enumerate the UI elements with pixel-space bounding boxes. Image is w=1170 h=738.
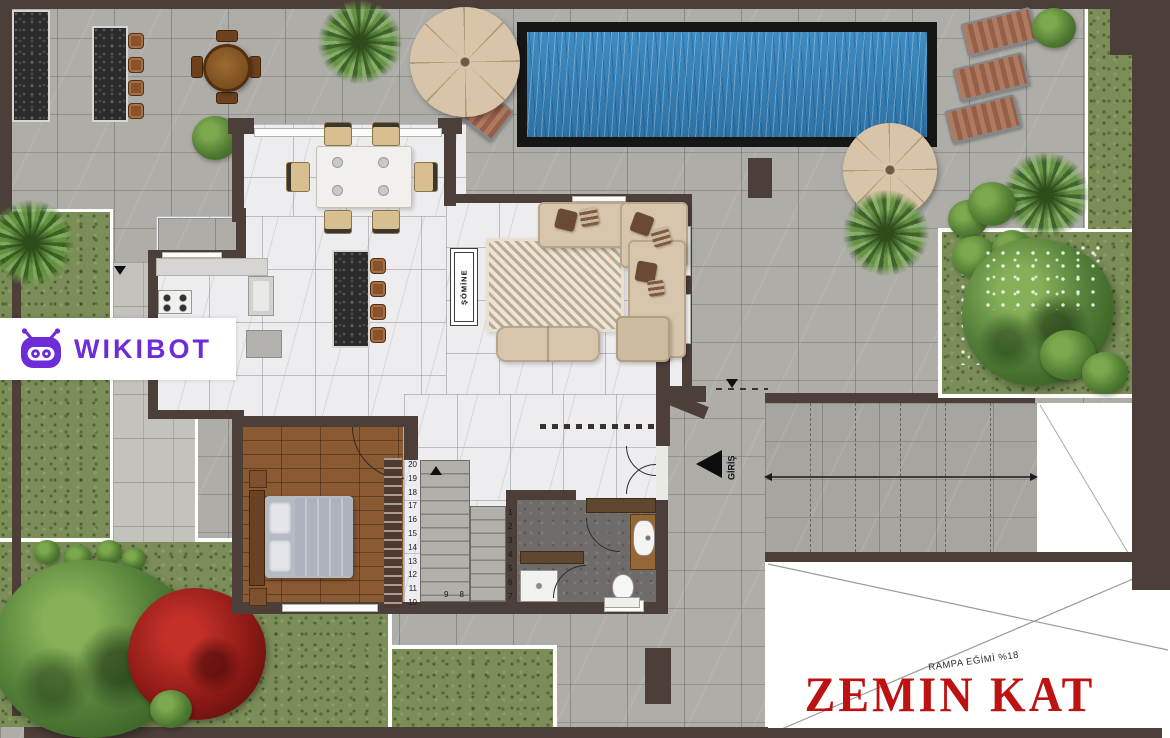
- pillar: [748, 158, 772, 198]
- bathroom-cabinet: [586, 498, 656, 513]
- bush: [968, 182, 1016, 226]
- stair-number: 18: [402, 489, 417, 497]
- wall: [506, 490, 576, 500]
- plate: [378, 157, 389, 168]
- wikibot-logo-icon: [18, 328, 64, 370]
- ramp-joint-line: [945, 403, 947, 552]
- shower-tray: [520, 570, 558, 602]
- window: [282, 604, 378, 612]
- stair-number: 16: [402, 516, 417, 524]
- dining-chair: [372, 122, 400, 146]
- throw-pillow: [647, 279, 665, 297]
- bed-pillow: [269, 540, 291, 572]
- wall-post: [228, 118, 254, 134]
- palm-plant: [318, 0, 402, 84]
- island-stool: [370, 281, 386, 297]
- path-dashed-line: [716, 388, 768, 390]
- stair-number: 5: [508, 565, 518, 573]
- stair-number: 8: [459, 591, 463, 599]
- outdoor-dining-table: [203, 44, 251, 92]
- wardrobe-hatch: [384, 458, 402, 608]
- stair-number: 13: [402, 558, 417, 566]
- path-arrow-icon: [726, 379, 738, 388]
- bathroom-sink: [633, 520, 655, 556]
- ramp-joint-line: [900, 403, 902, 552]
- dining-chair: [324, 122, 352, 146]
- throw-pillow: [579, 207, 600, 228]
- bar-counter: [94, 28, 126, 120]
- wall-right: [1132, 0, 1170, 590]
- wall: [232, 416, 243, 614]
- bbq-counter: [14, 12, 48, 120]
- entrance-door-threshold: [656, 446, 668, 500]
- plate: [332, 185, 343, 196]
- ceiling-break-dashed-line: [540, 424, 658, 429]
- wall: [148, 410, 244, 419]
- wall-left-upper: [0, 9, 12, 215]
- bar-stool: [128, 80, 144, 96]
- garden-bottom-band: [392, 645, 557, 727]
- stair-number: 20: [402, 461, 417, 469]
- wall: [236, 208, 246, 254]
- ramp-arrow-right-icon: [1030, 473, 1038, 481]
- entrance-arrow-icon: [696, 450, 722, 478]
- stairs-flight-left: [420, 460, 470, 602]
- palm-plant: [843, 190, 929, 276]
- outdoor-chair: [191, 56, 203, 78]
- bar-stool: [128, 33, 144, 49]
- stair-number: 2: [508, 523, 518, 531]
- stair-number: 17: [402, 502, 417, 510]
- stair-number: 9: [444, 591, 448, 599]
- stove-cooktop: [158, 290, 192, 314]
- island-stool: [370, 327, 386, 343]
- ramp-joint-line: [990, 403, 992, 552]
- dining-chair: [372, 210, 400, 234]
- stair-number: 3: [508, 537, 518, 545]
- entrance-label: GİRİŞ: [724, 444, 739, 492]
- walkway-arrow-icon: [114, 266, 126, 275]
- palm-plant: [1003, 152, 1089, 238]
- driveway-bottom-wall: [765, 552, 1162, 562]
- ramp-arrow-left-icon: [764, 473, 772, 481]
- nightstand: [249, 470, 267, 488]
- ramp-joint-line: [855, 403, 857, 552]
- wall: [404, 416, 418, 460]
- watermark: WIKIBOT: [0, 318, 236, 380]
- plate: [332, 157, 343, 168]
- patio-umbrella: [410, 7, 520, 117]
- stairs-flight-right: [470, 506, 506, 602]
- stairs-up-arrow-icon: [430, 466, 442, 475]
- stair-number: 19: [402, 475, 417, 483]
- wikibot-brand-text: WIKIBOT: [74, 334, 212, 365]
- stair-number: 4: [508, 551, 518, 559]
- island-stool: [370, 258, 386, 274]
- ramp-centerline: [772, 476, 1032, 478]
- stair-numbers-right: 1234567: [508, 509, 518, 601]
- wall: [232, 416, 418, 427]
- bed-blanket: [295, 498, 353, 576]
- dining-chair: [324, 210, 352, 234]
- floor-plan: ŞÖMİNE 2019181716151413121110 1234567 98…: [0, 0, 1170, 738]
- kitchen-cabinet: [246, 330, 282, 358]
- stair-number: 14: [402, 544, 417, 552]
- pillar: [645, 648, 671, 704]
- toilet-pedestal: [604, 597, 640, 608]
- flower-patch: [985, 250, 1095, 310]
- kitchen-sink: [248, 276, 274, 316]
- coffee-bench: [496, 326, 600, 362]
- stair-number: 6: [508, 579, 518, 587]
- nightstand: [249, 588, 267, 606]
- plate: [378, 185, 389, 196]
- dining-chair: [414, 162, 438, 192]
- wall: [232, 120, 244, 222]
- bathroom-cabinet: [520, 551, 584, 564]
- sofa-chaise: [616, 316, 670, 362]
- stair-number: 11: [402, 585, 417, 593]
- bush: [1082, 352, 1128, 394]
- kitchen-entry-paving: [158, 218, 242, 252]
- bed-pillow: [269, 502, 291, 534]
- dining-chair: [286, 162, 310, 192]
- stair-number: 12: [402, 571, 417, 579]
- island-stool: [370, 304, 386, 320]
- dining-table: [316, 146, 412, 208]
- stair-number: 7: [508, 593, 518, 601]
- bar-stool: [128, 57, 144, 73]
- stair-numbers-left: 2019181716151413121110: [402, 461, 417, 607]
- ramp-joint-line: [810, 403, 812, 552]
- ramp-area-corner: [1132, 588, 1170, 738]
- outdoor-chair: [216, 30, 238, 42]
- bush: [1032, 8, 1076, 48]
- stair-number: 1: [508, 509, 518, 517]
- pool-water: [527, 32, 927, 137]
- kitchen-counter: [156, 258, 268, 276]
- floor-title: ZEMIN KAT: [772, 666, 1128, 723]
- bed-headboard: [249, 490, 265, 586]
- ramp-area-side: [1037, 403, 1132, 562]
- outdoor-chair: [216, 92, 238, 104]
- stair-number: 10: [402, 599, 417, 607]
- area-rug: [486, 238, 624, 332]
- fireplace: ŞÖMİNE: [450, 248, 478, 326]
- stair-numbers-landing: 98: [444, 591, 464, 599]
- bush: [150, 690, 192, 728]
- wall: [656, 498, 668, 614]
- kitchen-island: [334, 252, 368, 346]
- fireplace-label: ŞÖMİNE: [451, 249, 477, 325]
- wall-top: [0, 0, 1170, 9]
- topiary-bush: [34, 540, 60, 564]
- bar-stool: [128, 103, 144, 119]
- wall-bottom-ramp: [765, 728, 1162, 738]
- stair-number: 15: [402, 530, 417, 538]
